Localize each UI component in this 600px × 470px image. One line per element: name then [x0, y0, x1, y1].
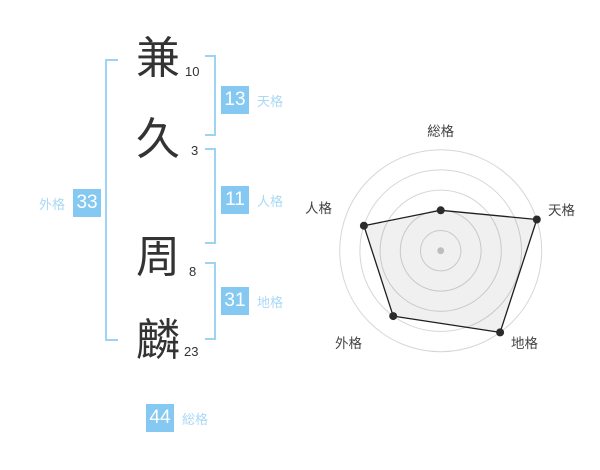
seimei-handan-result: 兼 10 久 3 周 8 麟 23 13 天格 11 人格 31 地格 外格 3… — [0, 0, 600, 470]
tenkaku-value: 13 — [221, 86, 249, 114]
chikaku-value: 31 — [221, 287, 249, 315]
stroke-count-3: 8 — [189, 265, 196, 279]
radar-point — [437, 206, 445, 214]
gaikaku-value: 33 — [73, 189, 101, 217]
jinkaku-bracket — [205, 148, 216, 244]
stroke-count-4: 23 — [184, 345, 198, 359]
jinkaku-value: 11 — [221, 186, 249, 214]
radar-point — [496, 328, 504, 336]
chikaku-bracket — [205, 262, 216, 340]
soukaku-value: 44 — [146, 404, 174, 432]
name-character-4: 麟 — [132, 319, 184, 363]
radar-series — [360, 206, 541, 336]
radar-point — [360, 222, 368, 230]
radar-axis-label-soukaku: 総格 — [427, 124, 454, 139]
chikaku-label: 地格 — [257, 292, 283, 311]
radar-axis-label-tenkaku: 天格 — [548, 203, 576, 218]
jinkaku-label: 人格 — [257, 191, 283, 210]
tenkaku-label: 天格 — [257, 91, 283, 110]
radar-axis-label-chikaku: 地格 — [511, 336, 539, 351]
gaikaku-bracket — [105, 59, 118, 341]
soukaku-badge: 44 総格 — [146, 404, 208, 432]
gaikaku-badge: 外格 33 — [39, 189, 101, 217]
tenkaku-badge: 13 天格 — [221, 86, 283, 114]
radar-chart: 総格 天格 地格 外格 人格 — [300, 108, 590, 368]
gaikaku-label: 外格 — [39, 194, 65, 213]
name-character-3: 周 — [132, 236, 184, 280]
stroke-count-1: 10 — [185, 65, 199, 79]
soukaku-label: 総格 — [182, 409, 208, 428]
radar-axis-label-jinkaku: 人格 — [305, 201, 332, 216]
radar-point — [389, 312, 397, 320]
radar-point — [533, 216, 541, 224]
chikaku-badge: 31 地格 — [221, 287, 283, 315]
jinkaku-badge: 11 人格 — [221, 186, 283, 214]
radar-center-dot — [437, 247, 444, 254]
name-character-2: 久 — [132, 118, 184, 162]
name-character-1: 兼 — [132, 37, 184, 81]
tenkaku-bracket — [205, 55, 216, 136]
radar-axis-label-gaikaku: 外格 — [335, 336, 362, 351]
stroke-count-2: 3 — [191, 144, 198, 158]
